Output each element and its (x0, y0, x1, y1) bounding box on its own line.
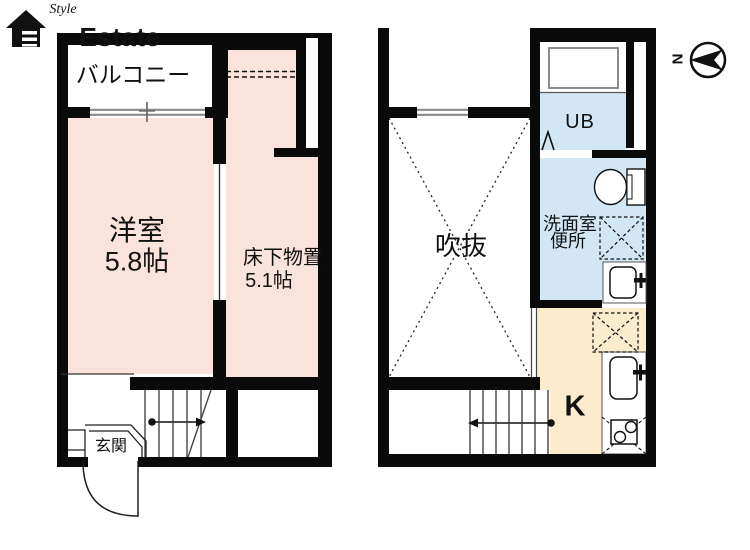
entrance-label: 玄関 (95, 439, 127, 455)
north-label: N (671, 54, 686, 65)
western-room-label: 洋室 (109, 217, 165, 245)
pipe-space-left (306, 38, 318, 148)
stairs-right-arrow (468, 419, 555, 428)
compass (690, 43, 725, 77)
right-plan (378, 28, 656, 467)
brand-script: Style (49, 3, 76, 17)
unit-bath-label: UB (565, 112, 595, 132)
brand-logo (6, 10, 46, 47)
washroom-sink (603, 262, 646, 303)
storage-size: 5.1帖 (245, 271, 293, 291)
stairs-left-arrow (148, 418, 206, 427)
balcony-label: バルコニー (76, 64, 191, 87)
atrium-label: 吹抜 (435, 233, 487, 259)
toilet-label: 便所 (550, 232, 586, 250)
entrance-door (83, 461, 138, 517)
kitchen-label: K (565, 393, 586, 422)
western-room-size: 5.8帖 (105, 249, 170, 276)
storage-label: 床下物置 (243, 248, 323, 268)
floorplan: Style Estate バルコニー 洋室 5.8帖 床下物置 5.1帖 玄関 … (0, 0, 750, 550)
atrium-window (417, 110, 468, 115)
house-icon (6, 10, 46, 47)
atrium-kitchen-boundary (532, 308, 537, 377)
toilet (595, 169, 646, 205)
stairs-right (470, 390, 548, 454)
brand-name: Estate (79, 24, 160, 50)
water-heater (549, 48, 618, 88)
